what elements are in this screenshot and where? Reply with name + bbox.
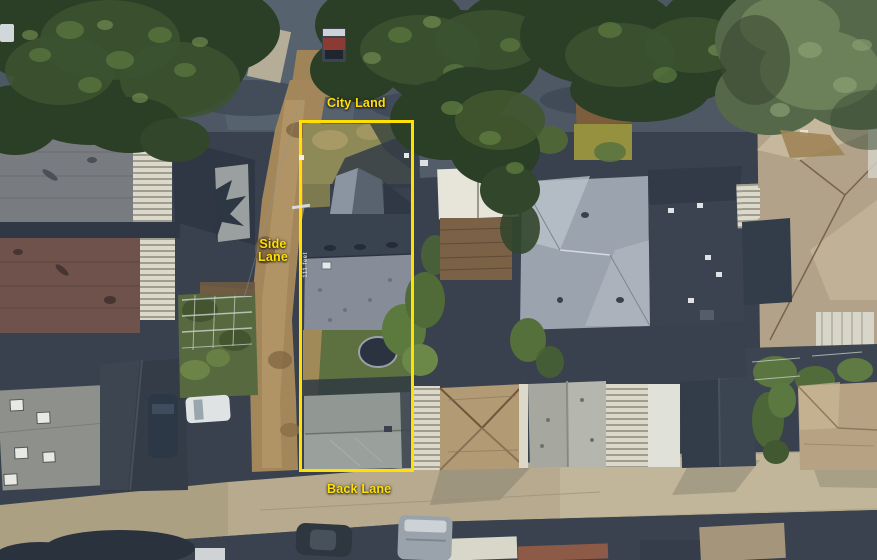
sedan-bottom-street [295, 523, 353, 558]
van-bottom-street [397, 515, 453, 560]
white-car-top-left-corner [0, 24, 14, 42]
ruler-endpoint-left [299, 155, 304, 160]
flat-roof-building [0, 385, 106, 490]
label-side-lane-line2: Lane [250, 251, 296, 264]
label-city-land: City Land [327, 97, 386, 110]
aerial-photo-stage: 111 feet City Land Side Lane Back Lane [0, 0, 877, 560]
garden-with-trellis [178, 282, 258, 398]
lot-outline [299, 120, 414, 472]
label-side-lane: Side Lane [250, 238, 296, 264]
label-back-lane: Back Lane [327, 483, 391, 496]
truck-top-alley [322, 28, 346, 62]
dark-car-left [148, 394, 178, 458]
ruler-endpoint-right [404, 153, 409, 158]
left-house-brown-roof [0, 222, 180, 333]
right-house-light-gray-roof [520, 176, 650, 330]
satellite-imagery [0, 0, 877, 560]
lot-depth-marker: 111 feet [303, 252, 309, 278]
white-car-left [185, 394, 231, 423]
garage-row [414, 378, 877, 470]
